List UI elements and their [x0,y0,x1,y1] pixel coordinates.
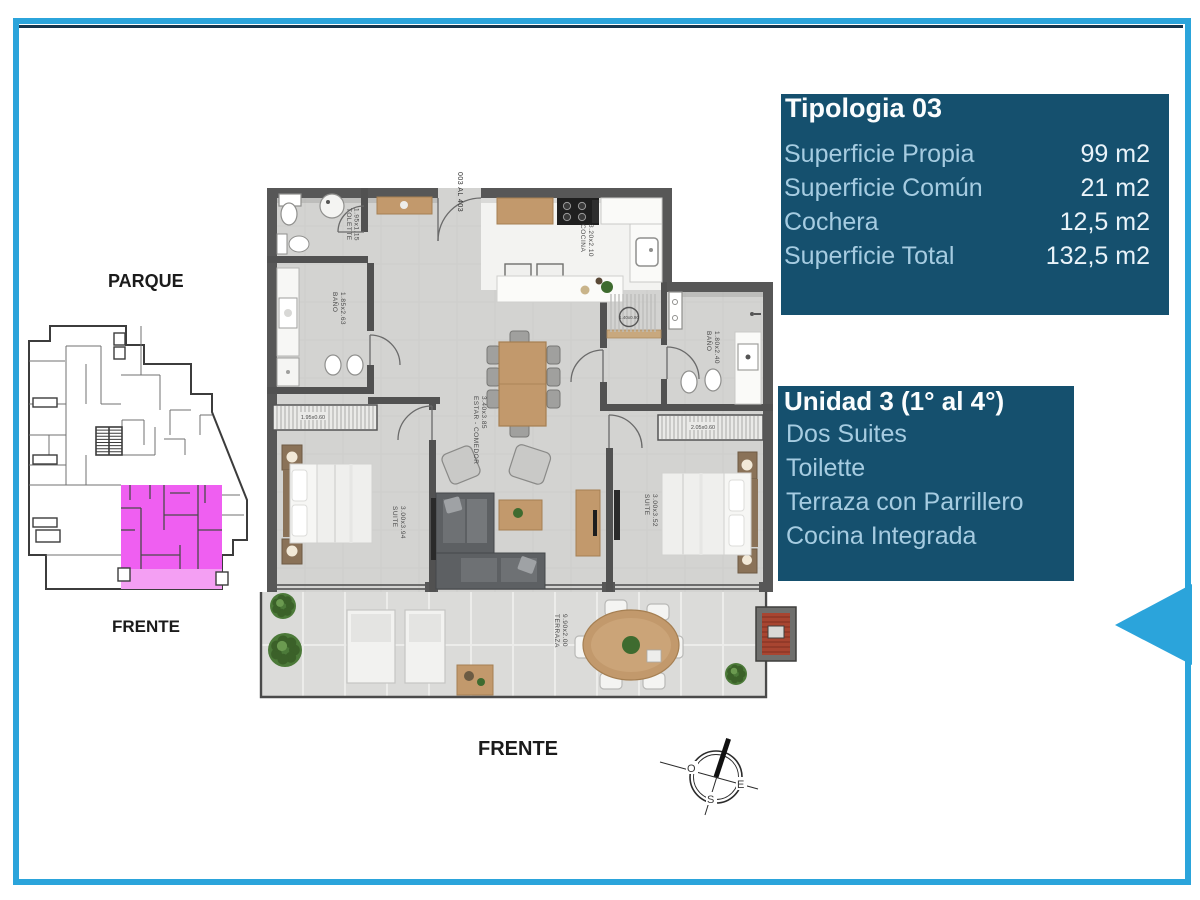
svg-text:COCINA: COCINA [579,224,586,252]
svg-text:TOLETTE: TOLETTE [345,208,352,241]
svg-text:3.00x3.52: 3.00x3.52 [651,494,658,527]
svg-text:9.90x2.00: 9.90x2.00 [561,614,568,647]
svg-text:2.05x0.60: 2.05x0.60 [691,425,715,431]
svg-text:1.85x2.63: 1.85x2.63 [339,292,346,325]
svg-text:3.00x3.94: 3.00x3.94 [399,506,406,539]
svg-text:1.80x2.40: 1.80x2.40 [713,331,720,364]
svg-text:ESTAR - COMEDOR: ESTAR - COMEDOR [472,396,479,464]
svg-text:E: E [737,779,744,791]
svg-text:1.40x0.90: 1.40x0.90 [619,315,639,320]
svg-text:SUITE: SUITE [643,494,650,516]
svg-text:O: O [687,763,696,775]
svg-text:1.95x1.15: 1.95x1.15 [353,208,360,241]
svg-text:3.40x3.85: 3.40x3.85 [480,396,487,429]
svg-text:BAÑO: BAÑO [331,292,340,312]
svg-text:TERRAZA: TERRAZA [553,614,560,648]
svg-text:1.95x0.60: 1.95x0.60 [301,415,325,421]
svg-text:3.20x2.10: 3.20x2.10 [587,224,594,257]
svg-text:SUITE: SUITE [391,506,398,528]
svg-text:BAÑO: BAÑO [705,331,714,351]
svg-text:S: S [707,794,714,806]
svg-text:003 AL 403: 003 AL 403 [456,172,463,212]
